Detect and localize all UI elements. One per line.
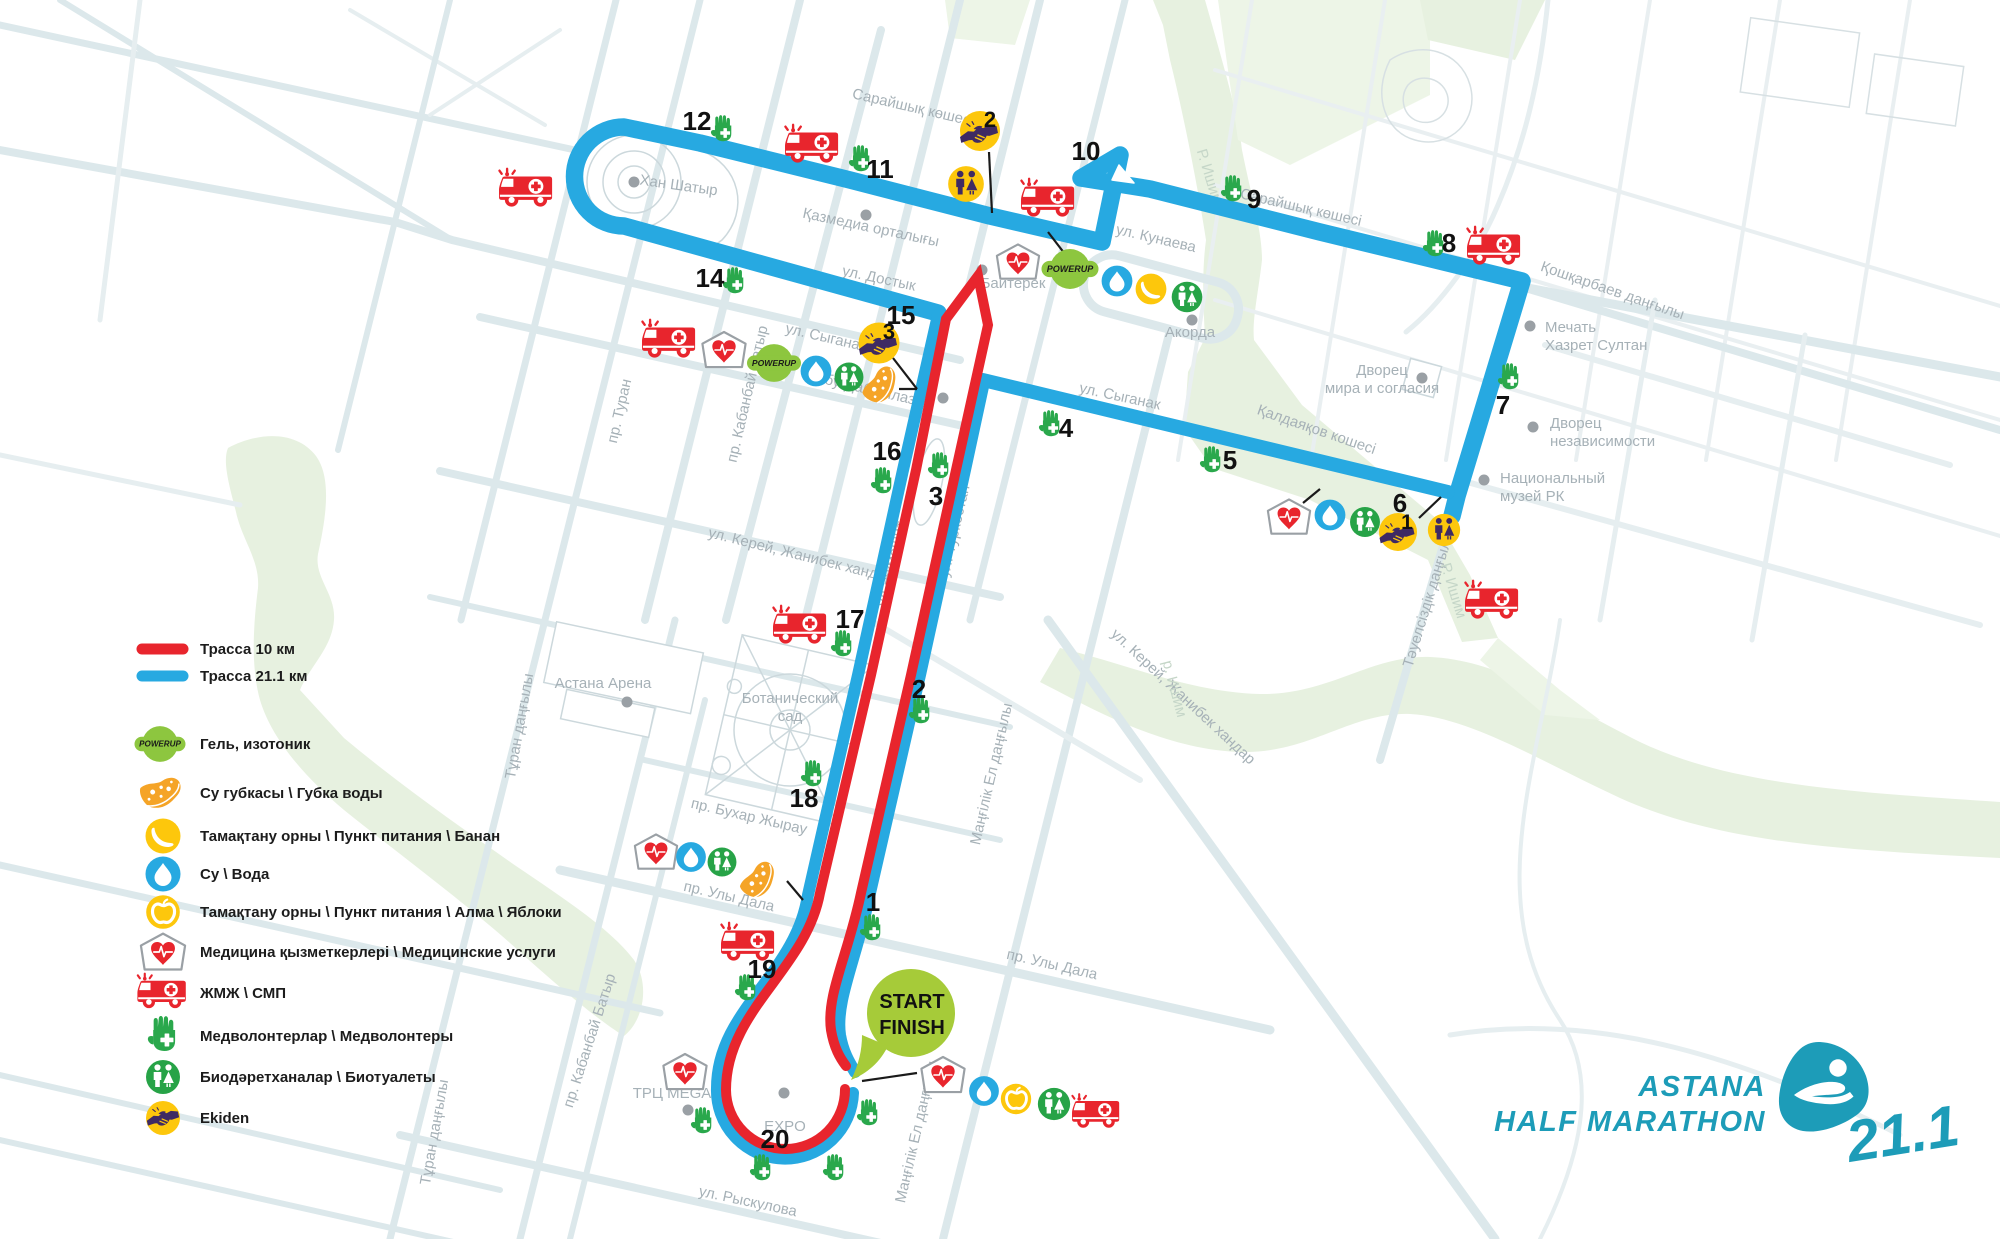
svg-text:Дворец: Дворец: [1356, 362, 1408, 379]
svg-text:15: 15: [887, 300, 916, 330]
svg-text:ASTANA: ASTANA: [1637, 1071, 1766, 1103]
svg-text:Медволонтерлар \ Медволонтеры: Медволонтерлар \ Медволонтеры: [200, 1028, 453, 1045]
svg-text:Биодәретханалар \ Биотуалеты: Биодәретханалар \ Биотуалеты: [200, 1069, 436, 1086]
svg-text:14: 14: [696, 263, 725, 293]
svg-text:музей РК: музей РК: [1500, 488, 1565, 505]
svg-text:3: 3: [929, 481, 943, 511]
svg-text:START: START: [879, 991, 944, 1013]
svg-text:Трасса 21.1 км: Трасса 21.1 км: [200, 668, 307, 685]
svg-text:10: 10: [1072, 136, 1101, 166]
svg-text:19: 19: [748, 954, 777, 984]
svg-text:Национальный: Национальный: [1500, 470, 1605, 487]
svg-text:1: 1: [866, 887, 880, 917]
svg-text:8: 8: [1442, 228, 1456, 258]
svg-text:Тамақтану орны \ Пункт питания: Тамақтану орны \ Пункт питания \ Алма \ …: [200, 904, 562, 921]
svg-text:Гель, изотоник: Гель, изотоник: [200, 736, 311, 753]
svg-text:11: 11: [866, 154, 894, 184]
svg-text:Ботанический: Ботанический: [742, 690, 839, 707]
svg-text:5: 5: [1223, 445, 1237, 475]
svg-text:6: 6: [1393, 488, 1407, 518]
svg-text:Тамақтану орны \ Пункт питания: Тамақтану орны \ Пункт питания \ Банан: [200, 828, 500, 845]
svg-text:16: 16: [873, 436, 902, 466]
svg-text:9: 9: [1247, 184, 1261, 214]
svg-text:независимости: независимости: [1550, 433, 1655, 450]
svg-text:HALF MARATHON: HALF MARATHON: [1494, 1106, 1766, 1138]
svg-text:сад: сад: [778, 708, 803, 725]
svg-text:20: 20: [761, 1124, 790, 1154]
svg-text:12: 12: [683, 106, 712, 136]
svg-text:Мечать: Мечать: [1545, 319, 1596, 336]
svg-text:Дворец: Дворец: [1550, 415, 1602, 432]
svg-text:4: 4: [1059, 413, 1074, 443]
svg-text:Трасса 10 км: Трасса 10 км: [200, 641, 295, 658]
svg-text:FINISH: FINISH: [879, 1017, 945, 1039]
svg-text:Астана Арена: Астана Арена: [555, 675, 652, 692]
svg-text:Акорда: Акорда: [1165, 324, 1216, 341]
svg-text:2: 2: [984, 107, 996, 132]
svg-text:7: 7: [1496, 390, 1510, 420]
svg-text:Медицина қызметкерлері \ Медиц: Медицина қызметкерлері \ Медицинские усл…: [200, 944, 556, 961]
svg-text:Хазрет Султан: Хазрет Султан: [1545, 337, 1647, 354]
svg-text:Су губкасы \ Губка воды: Су губкасы \ Губка воды: [200, 785, 383, 802]
svg-text:2: 2: [912, 674, 926, 704]
svg-text:17: 17: [836, 604, 865, 634]
svg-text:ЖМЖ \ СМП: ЖМЖ \ СМП: [199, 985, 286, 1002]
svg-text:18: 18: [790, 783, 819, 813]
svg-text:Ekiden: Ekiden: [200, 1110, 249, 1127]
svg-text:Су \ Вода: Су \ Вода: [200, 866, 270, 883]
